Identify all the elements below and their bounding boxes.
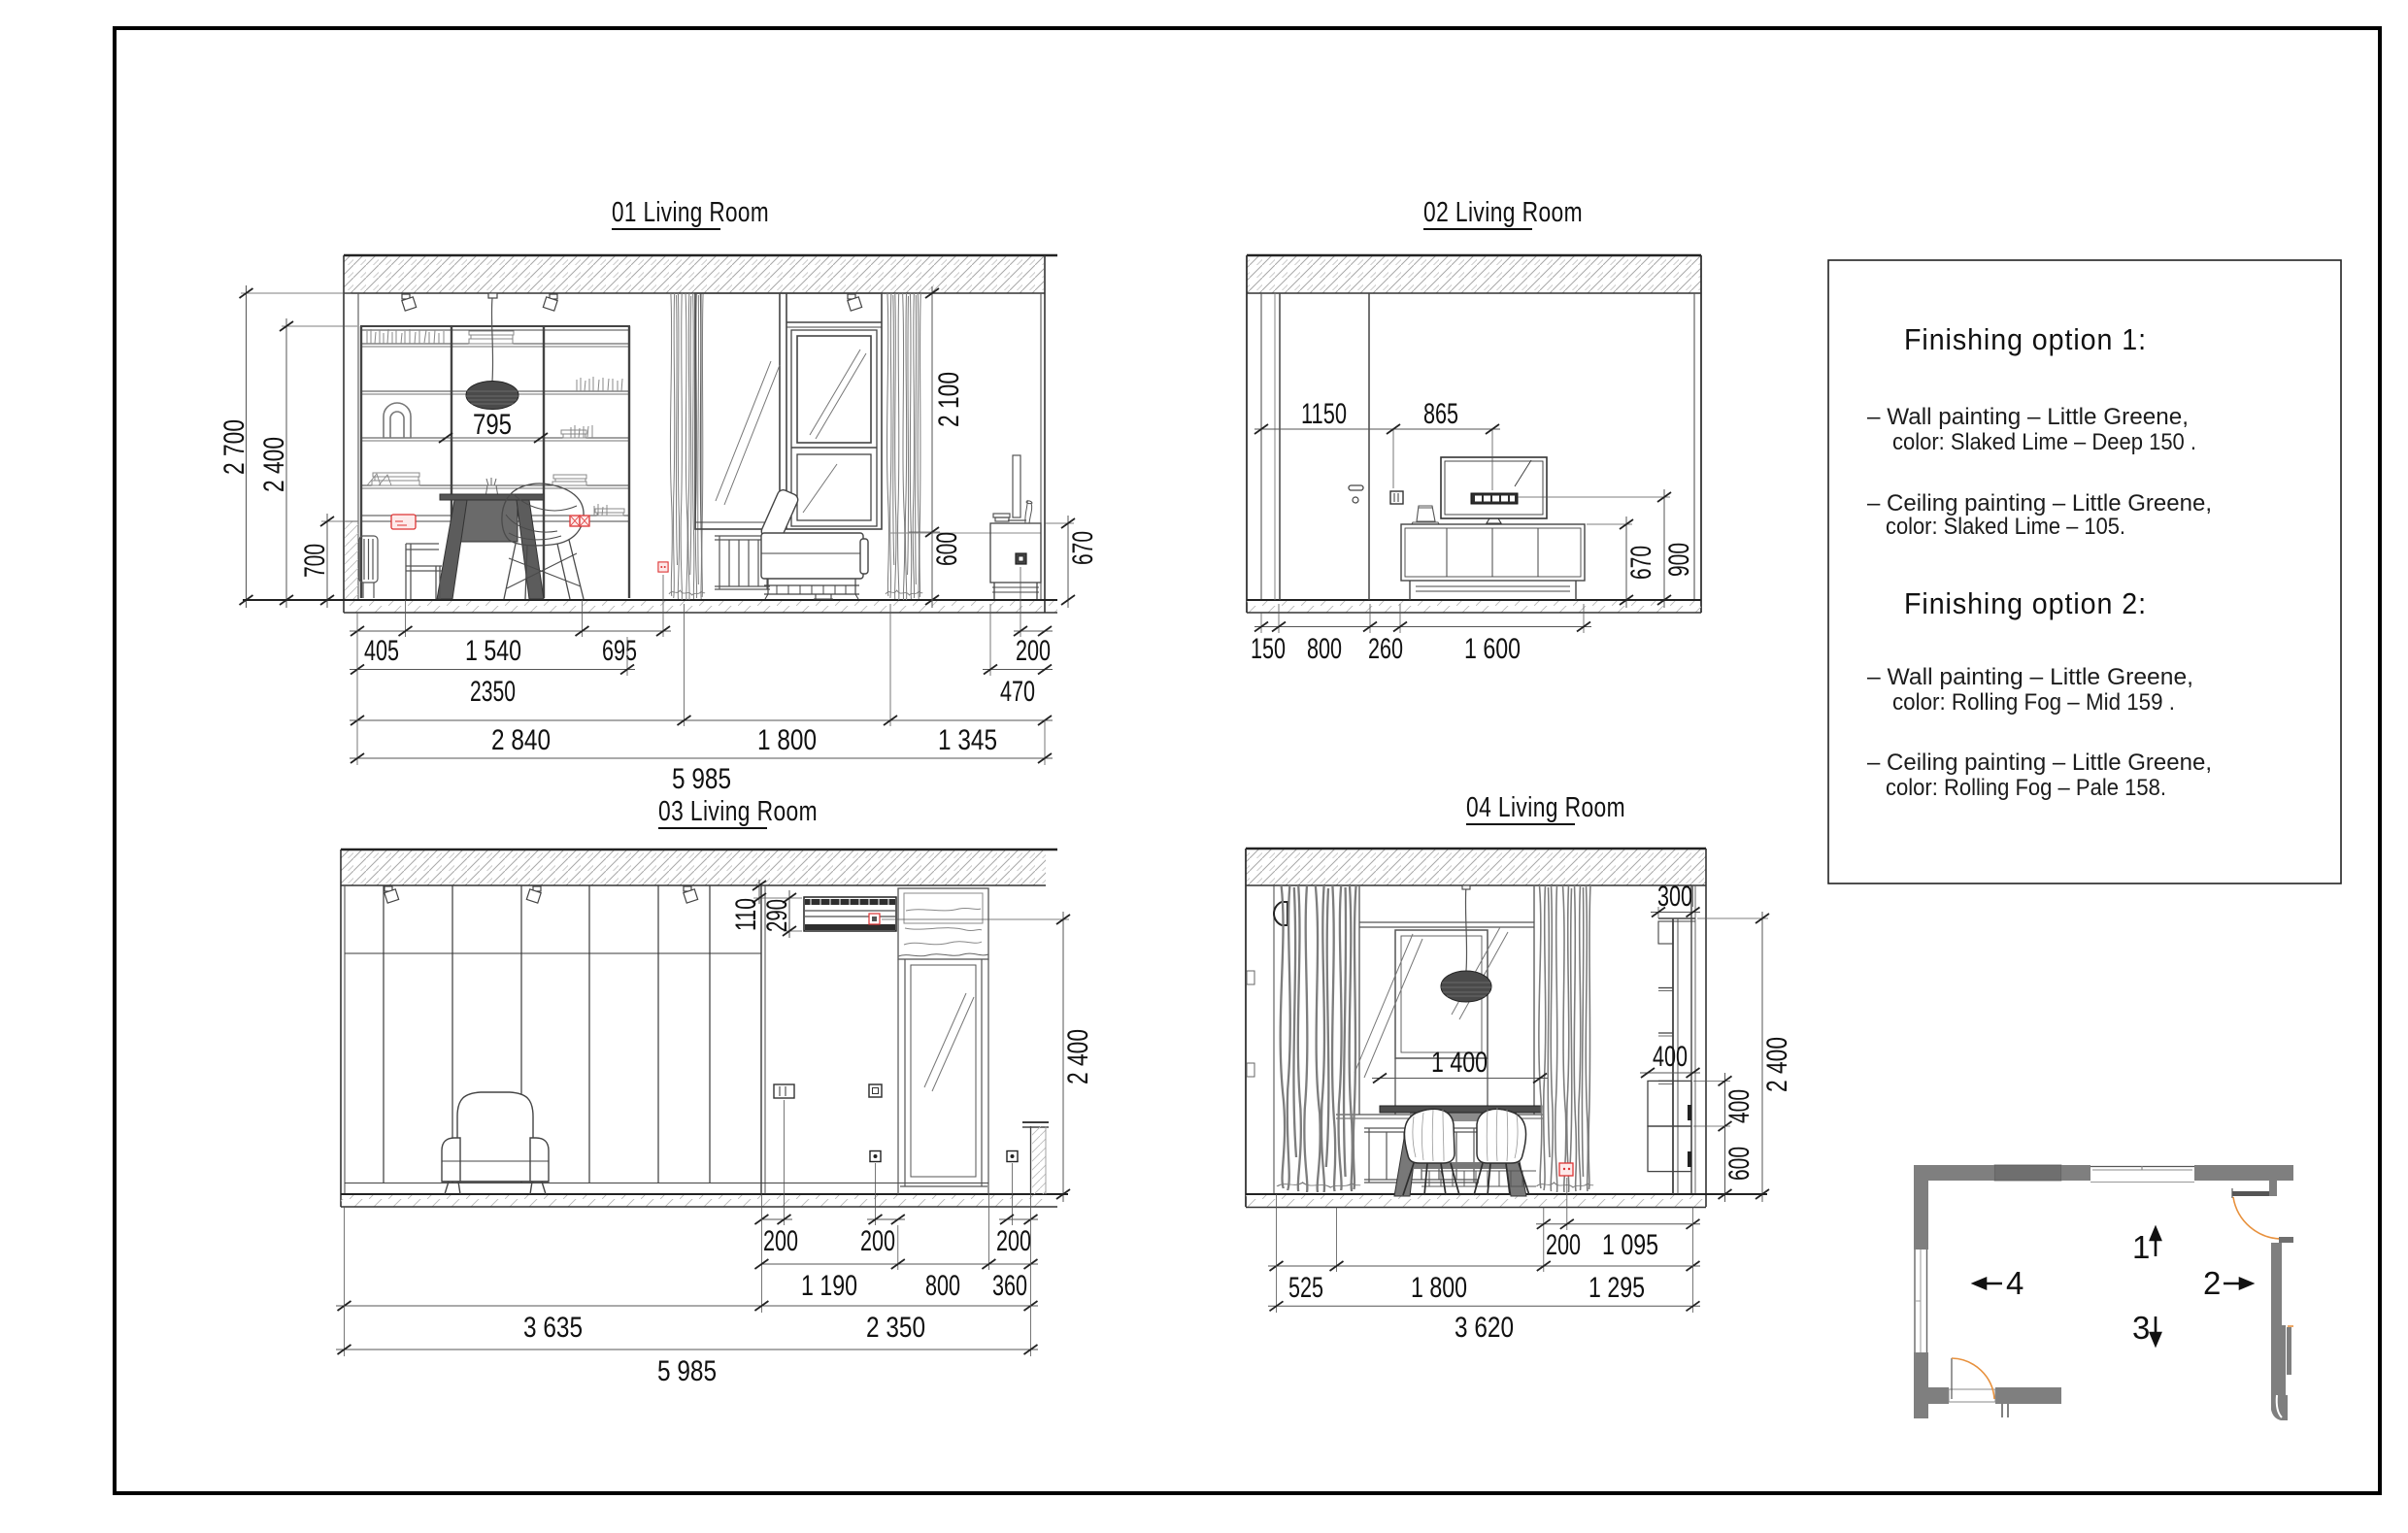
svg-text:04 Living Room: 04 Living Room bbox=[1466, 792, 1625, 823]
svg-text:200: 200 bbox=[1016, 635, 1051, 667]
svg-text:200: 200 bbox=[860, 1225, 895, 1257]
svg-text:405: 405 bbox=[364, 635, 399, 667]
svg-text:02 Living Room: 02 Living Room bbox=[1423, 197, 1583, 228]
svg-text:01 Living Room: 01 Living Room bbox=[612, 197, 769, 228]
svg-text:3 635: 3 635 bbox=[523, 1312, 583, 1344]
svg-text:260: 260 bbox=[1368, 633, 1403, 665]
svg-text:1150: 1150 bbox=[1301, 398, 1347, 430]
svg-text:2 400: 2 400 bbox=[1062, 1029, 1094, 1084]
svg-text:695: 695 bbox=[602, 635, 637, 667]
svg-text:1 800: 1 800 bbox=[757, 724, 817, 756]
svg-text:900: 900 bbox=[1663, 543, 1695, 577]
svg-text:4: 4 bbox=[2006, 1265, 2023, 1301]
svg-text:– Wall painting – Little Gr: – Wall painting – Little Greene, bbox=[1867, 404, 2189, 430]
svg-text:– Ceiling painting – Little: – Ceiling painting – Little Greene, bbox=[1867, 750, 2212, 776]
svg-text:1 540: 1 540 bbox=[465, 635, 521, 667]
svg-text:400: 400 bbox=[1653, 1041, 1688, 1073]
svg-text:150: 150 bbox=[1251, 633, 1286, 665]
svg-text:1 800: 1 800 bbox=[1411, 1272, 1467, 1304]
svg-text:3: 3 bbox=[2132, 1310, 2150, 1346]
svg-text:Finishing option 1:: Finishing option 1: bbox=[1904, 322, 2147, 356]
svg-text:2 400: 2 400 bbox=[258, 437, 290, 492]
svg-text:2 840: 2 840 bbox=[491, 724, 551, 756]
svg-text:– Wall painting – Little Gr: – Wall painting – Little Greene, bbox=[1867, 664, 2193, 690]
svg-text:600: 600 bbox=[1723, 1147, 1756, 1181]
svg-text:1 095: 1 095 bbox=[1602, 1229, 1658, 1261]
svg-text:300: 300 bbox=[1657, 881, 1692, 913]
svg-text:Finishing option 2:: Finishing option 2: bbox=[1904, 586, 2147, 620]
svg-text:03 Living Room: 03 Living Room bbox=[658, 796, 818, 827]
svg-text:color: Rolling Fog – Pale 15: color: Rolling Fog – Pale 158. bbox=[1886, 775, 2166, 801]
svg-text:400: 400 bbox=[1723, 1089, 1756, 1123]
svg-text:1: 1 bbox=[2132, 1229, 2150, 1265]
svg-text:2 400: 2 400 bbox=[1761, 1037, 1793, 1092]
svg-text:865: 865 bbox=[1423, 398, 1458, 430]
svg-text:670: 670 bbox=[1625, 546, 1657, 580]
svg-text:1 190: 1 190 bbox=[801, 1270, 857, 1302]
svg-text:color: Rolling Fog – Mid 159: color: Rolling Fog – Mid 159 . bbox=[1892, 689, 2175, 716]
svg-text:color: Slaked Lime – Deep 15: color: Slaked Lime – Deep 150 . bbox=[1892, 429, 2196, 455]
svg-text:800: 800 bbox=[1307, 633, 1342, 665]
svg-text:2: 2 bbox=[2203, 1265, 2221, 1301]
svg-text:1 400: 1 400 bbox=[1431, 1047, 1488, 1079]
svg-text:5 985: 5 985 bbox=[672, 763, 731, 795]
svg-text:3 620: 3 620 bbox=[1455, 1312, 1514, 1344]
svg-text:670: 670 bbox=[1067, 531, 1099, 565]
svg-text:2 350: 2 350 bbox=[866, 1312, 925, 1344]
svg-text:– Ceiling painting – Little: – Ceiling painting – Little Greene, bbox=[1867, 490, 2212, 517]
svg-text:470: 470 bbox=[1000, 676, 1035, 708]
svg-text:700: 700 bbox=[299, 544, 331, 578]
svg-text:800: 800 bbox=[925, 1270, 960, 1302]
svg-text:110: 110 bbox=[730, 898, 762, 931]
svg-text:2350: 2350 bbox=[470, 676, 516, 708]
svg-text:2 700: 2 700 bbox=[218, 419, 251, 475]
svg-text:795: 795 bbox=[473, 409, 512, 441]
svg-text:5 985: 5 985 bbox=[657, 1355, 717, 1387]
svg-text:1 345: 1 345 bbox=[938, 724, 997, 756]
svg-text:1 295: 1 295 bbox=[1589, 1272, 1645, 1304]
svg-text:200: 200 bbox=[763, 1225, 798, 1257]
svg-text:360: 360 bbox=[992, 1270, 1027, 1302]
svg-text:200: 200 bbox=[1546, 1229, 1581, 1261]
svg-text:2 100: 2 100 bbox=[933, 372, 965, 427]
svg-text:290: 290 bbox=[761, 899, 793, 932]
svg-text:1 600: 1 600 bbox=[1464, 633, 1521, 665]
svg-text:525: 525 bbox=[1288, 1272, 1323, 1304]
svg-text:200: 200 bbox=[996, 1225, 1031, 1257]
svg-text:600: 600 bbox=[931, 532, 963, 566]
svg-text:color: Slaked Lime – 105.: color: Slaked Lime – 105. bbox=[1886, 514, 2125, 540]
